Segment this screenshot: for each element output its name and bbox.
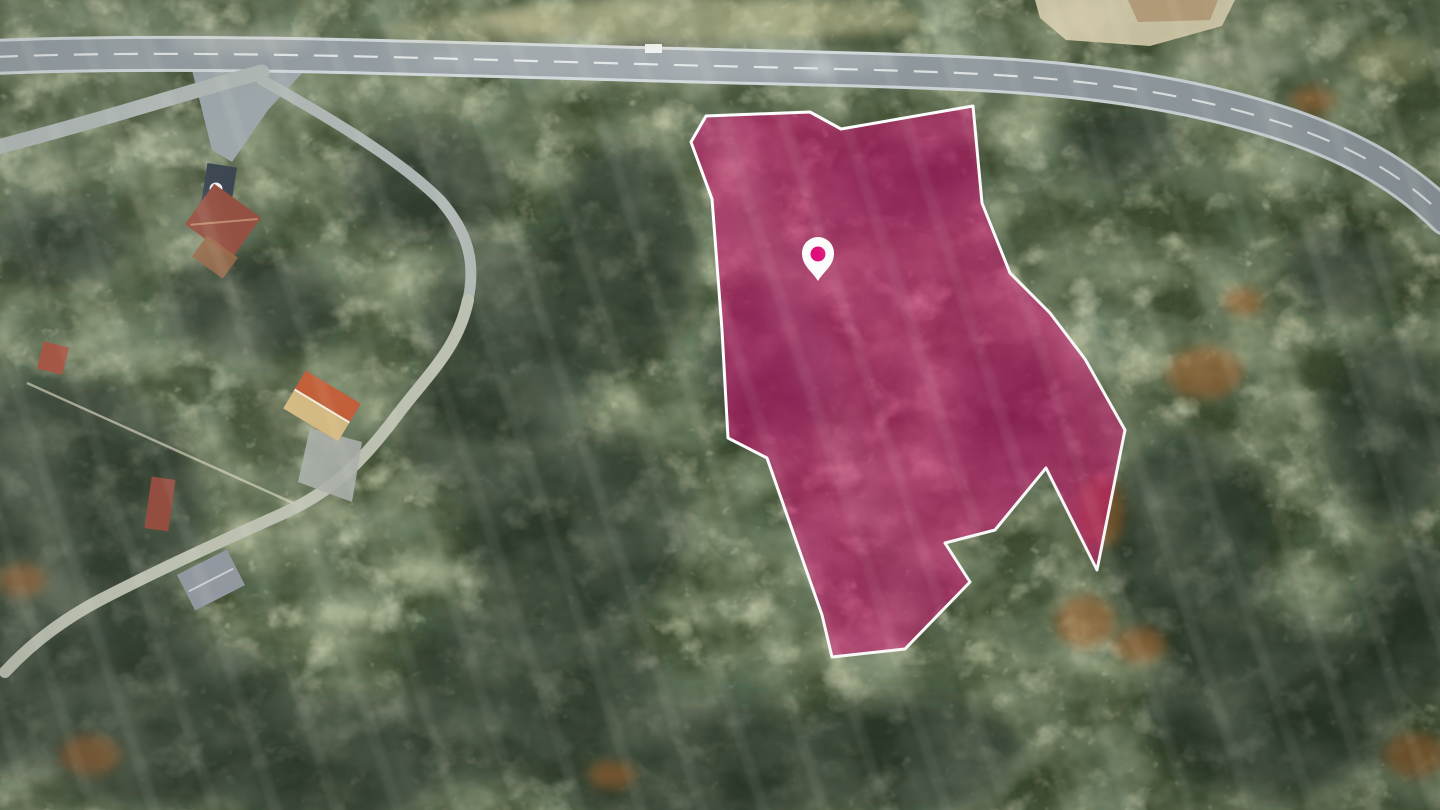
canopy-shadow-blob xyxy=(1285,225,1395,315)
sun-glare-spot xyxy=(1355,32,1435,84)
canopy-shadow-blob xyxy=(1060,105,1180,185)
terraced-ground xyxy=(1128,0,1218,22)
autumn-tree-blob xyxy=(588,761,636,789)
autumn-tree-blob xyxy=(1114,627,1166,663)
aerial-photo xyxy=(0,0,1440,810)
autumn-tree-blob xyxy=(60,735,120,775)
autumn-tree-blob xyxy=(0,564,46,596)
sun-glare-spot xyxy=(390,12,570,44)
aerial-photo-canvas xyxy=(0,0,1440,810)
autumn-tree-blob xyxy=(1055,596,1115,648)
autumn-tree-blob xyxy=(1223,288,1263,316)
autumn-tree-blob xyxy=(1167,347,1243,399)
sun-glare-spot xyxy=(1180,46,1300,78)
canopy-shadow-blob xyxy=(555,140,695,370)
canopy-shadow-blob xyxy=(785,695,1025,810)
sun-glare-spot xyxy=(170,26,310,54)
pin-dot xyxy=(811,247,826,262)
canopy-shadow-blob xyxy=(160,250,340,360)
sun-glare-spot xyxy=(805,60,833,78)
